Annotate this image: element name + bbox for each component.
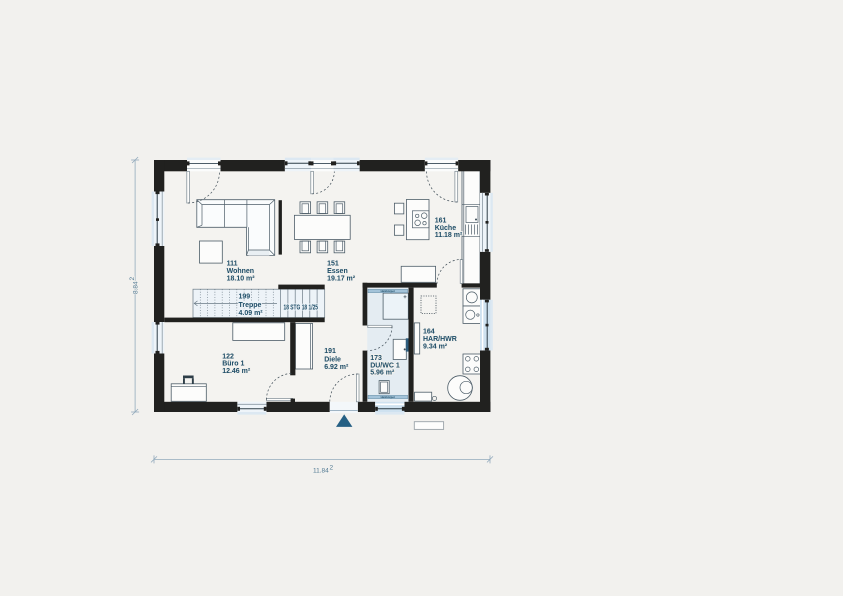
svg-text:11.84: 11.84 [313, 468, 329, 475]
svg-text:164: 164 [423, 328, 435, 335]
svg-text:9.34 m²: 9.34 m² [423, 343, 448, 350]
svg-text:11.18 m²: 11.18 m² [435, 232, 463, 239]
svg-text:151: 151 [327, 261, 339, 268]
svg-text:6.92 m²: 6.92 m² [324, 364, 349, 371]
svg-text:19.17 m²: 19.17 m² [327, 275, 356, 282]
svg-text:DU/WC 1: DU/WC 1 [370, 362, 400, 369]
svg-text:Heizkörper: Heizkörper [381, 395, 396, 399]
svg-text:HAR/HWR: HAR/HWR [423, 336, 457, 343]
svg-text:Wohnen: Wohnen [227, 268, 254, 275]
svg-text:4.09 m²: 4.09 m² [239, 310, 264, 317]
svg-text:18.10 m²: 18.10 m² [227, 275, 256, 282]
svg-text:2: 2 [129, 277, 136, 281]
svg-text:111: 111 [227, 261, 238, 268]
svg-text:5.96 m²: 5.96 m² [370, 370, 395, 377]
svg-text:161: 161 [435, 217, 447, 224]
svg-text:Büro 1: Büro 1 [222, 361, 244, 368]
svg-text:2: 2 [330, 464, 334, 471]
svg-text:Diele: Diele [324, 356, 341, 363]
svg-text:Treppe: Treppe [239, 302, 262, 309]
svg-text:12.46 m²: 12.46 m² [222, 368, 251, 375]
svg-text:191: 191 [324, 348, 336, 355]
svg-text:173: 173 [370, 355, 382, 362]
svg-text:199: 199 [239, 294, 251, 301]
svg-text:Küche: Küche [435, 225, 457, 232]
svg-text:18 STG 18 1/25: 18 STG 18 1/25 [284, 304, 319, 311]
svg-text:8.84: 8.84 [132, 281, 139, 294]
svg-text:Essen: Essen [327, 268, 348, 275]
svg-text:122: 122 [222, 353, 234, 360]
svg-text:Heizkörper: Heizkörper [381, 289, 396, 293]
